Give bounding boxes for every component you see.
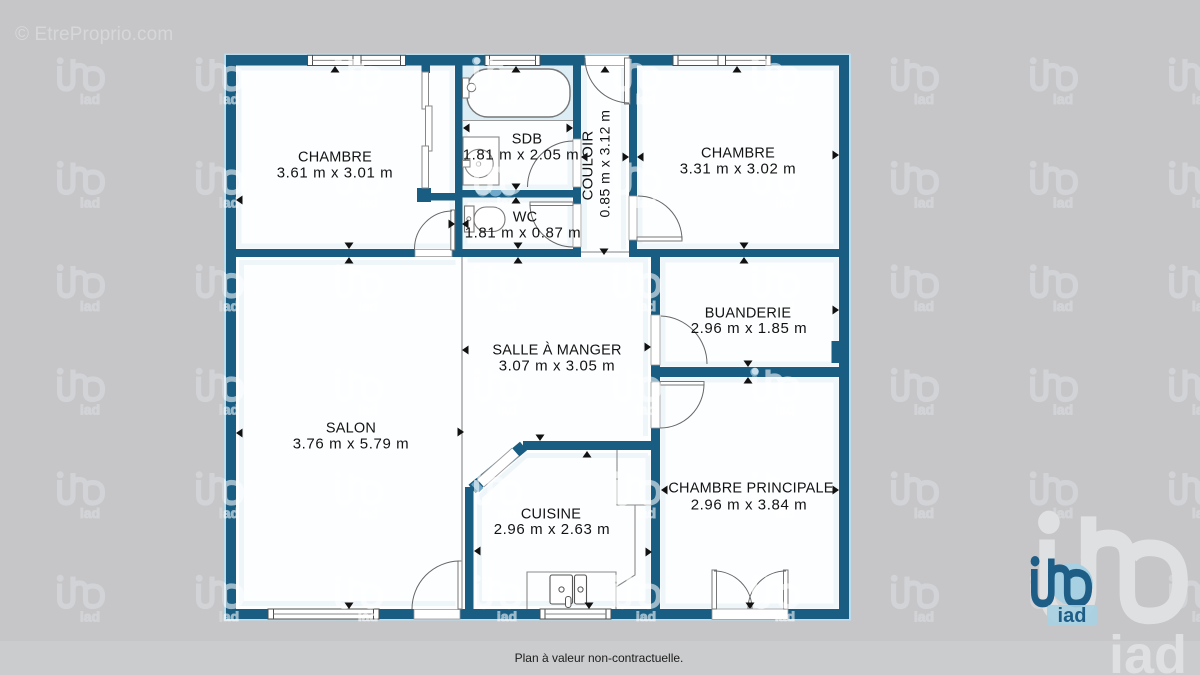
svg-text:3.76 m x 5.79 m: 3.76 m x 5.79 m xyxy=(293,436,410,453)
svg-text:Plan à valeur non-contractuell: Plan à valeur non-contractuelle. xyxy=(515,651,684,665)
svg-text:iad: iad xyxy=(1109,625,1187,675)
svg-text:COULOIR: COULOIR xyxy=(580,131,597,201)
svg-text:CHAMBRE PRINCIPALE: CHAMBRE PRINCIPALE xyxy=(668,481,833,497)
svg-text:1.81 m x 0.87 m: 1.81 m x 0.87 m xyxy=(465,225,582,242)
svg-text:CHAMBRE: CHAMBRE xyxy=(298,150,372,166)
svg-text:© EtreProprio.com: © EtreProprio.com xyxy=(15,24,173,45)
svg-text:3.61 m x 3.01 m: 3.61 m x 3.01 m xyxy=(277,165,394,182)
svg-text:iad: iad xyxy=(1058,605,1087,627)
svg-text:3.31 m x 3.02 m: 3.31 m x 3.02 m xyxy=(680,161,797,178)
svg-text:3.07 m x 3.05 m: 3.07 m x 3.05 m xyxy=(499,358,616,375)
svg-text:SDB: SDB xyxy=(512,132,542,148)
svg-text:2.96 m x 2.63 m: 2.96 m x 2.63 m xyxy=(494,521,611,538)
svg-text:SALLE À MANGER: SALLE À MANGER xyxy=(492,342,621,359)
svg-text:2.96 m x 3.84 m: 2.96 m x 3.84 m xyxy=(691,497,808,514)
svg-text:1.81 m x 2.05 m: 1.81 m x 2.05 m xyxy=(463,147,580,164)
svg-text:WC: WC xyxy=(513,210,538,226)
svg-text:CHAMBRE: CHAMBRE xyxy=(701,146,775,162)
svg-text:2.96 m x 1.85 m: 2.96 m x 1.85 m xyxy=(691,320,808,337)
svg-text:SALON: SALON xyxy=(326,421,376,437)
svg-text:0.85 m x 3.12 m: 0.85 m x 3.12 m xyxy=(597,110,613,218)
